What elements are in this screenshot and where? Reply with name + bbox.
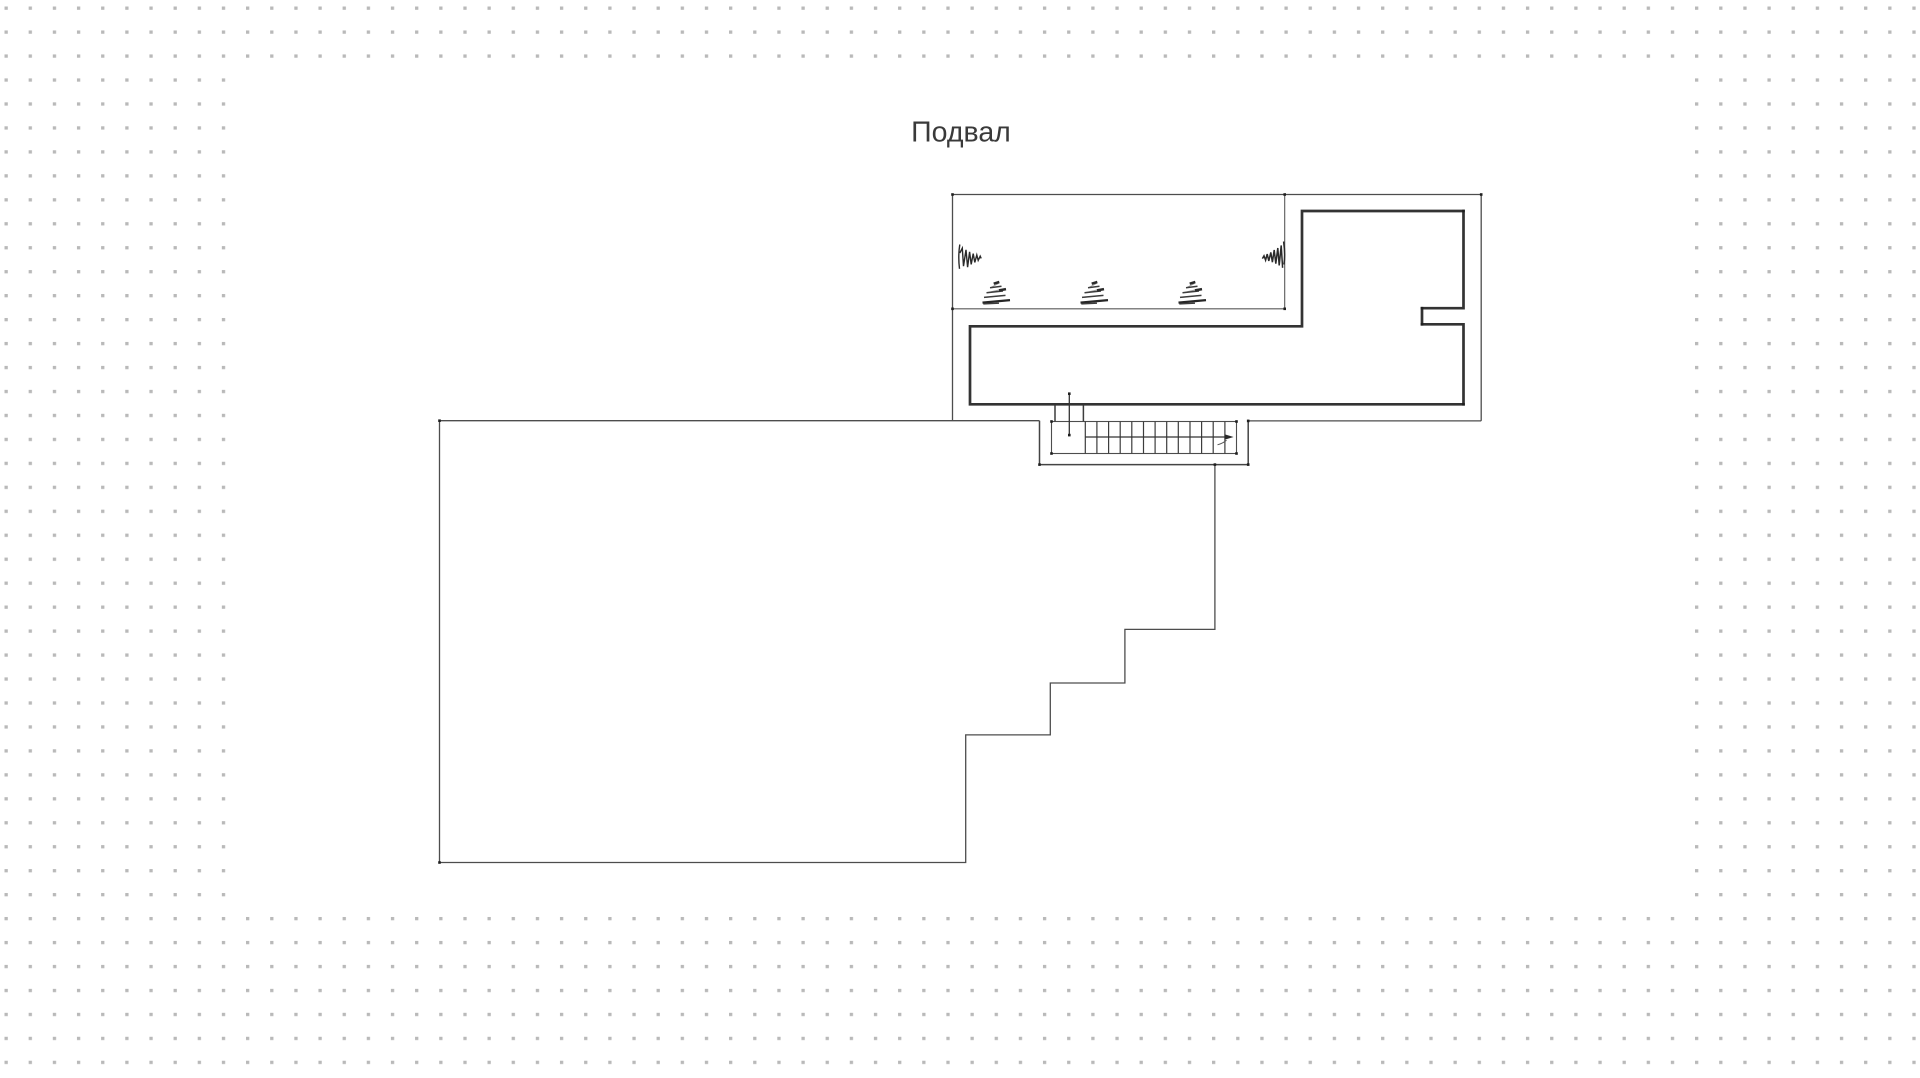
svg-text:Подвал: Подвал [911, 117, 1011, 149]
